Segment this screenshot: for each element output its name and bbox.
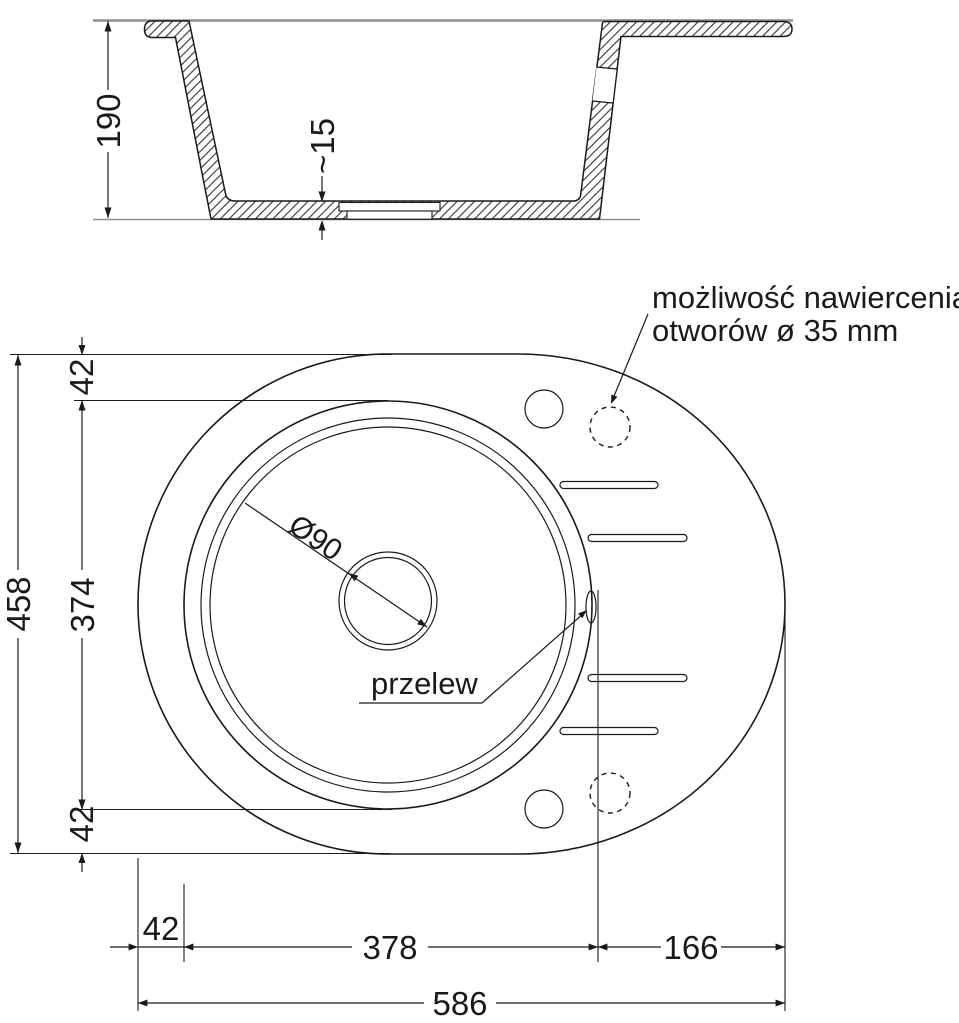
overflow-label: przelew <box>371 666 478 701</box>
rim-width-value: 42 <box>143 910 180 947</box>
drain-recess-section <box>339 203 440 220</box>
drainer-groove <box>588 675 687 682</box>
bowl-outer-rim <box>184 401 592 809</box>
total-depth-value: 458 <box>0 576 37 631</box>
bowl-inner-rim-outer <box>201 418 575 792</box>
overflow-callout: przelew <box>359 610 587 703</box>
tap-hole-bottom <box>525 790 563 828</box>
sink-outline <box>138 354 785 854</box>
technical-drawing-page: 190 ~15 <box>0 0 959 1023</box>
dimension-top-offset: 42 <box>63 337 100 395</box>
optional-hole-bottom <box>590 773 630 813</box>
sink-technical-drawing: 190 ~15 <box>0 0 959 1023</box>
annotation-line1: możliwość nawiercenia <box>652 280 959 315</box>
drainer-groove <box>560 482 658 489</box>
drainer-grooves <box>560 482 687 735</box>
sink-section-body <box>145 21 793 219</box>
dimension-bottom-thickness: ~15 <box>304 118 341 240</box>
bowl-inner-rim-inner <box>210 427 566 783</box>
section-height-value: 190 <box>90 93 127 148</box>
drainer-groove <box>588 535 687 542</box>
tap-hole-top <box>525 390 563 428</box>
drainer-groove <box>560 728 658 735</box>
dimension-bottom-offset: 42 <box>63 806 100 872</box>
optional-hole-top <box>590 407 630 447</box>
overflow-hole-section <box>593 67 617 103</box>
bowl-diameter-value: 374 <box>64 577 101 632</box>
dimension-bowl-diameter: 374 <box>64 400 101 810</box>
bowl-width-value: 378 <box>362 929 417 966</box>
dimension-section-height: 190 <box>90 21 127 218</box>
cross-section-view: 190 ~15 <box>90 21 793 241</box>
dimension-drainer-width: 166 <box>598 929 785 966</box>
bottom-offset-value: 42 <box>63 806 100 843</box>
dimension-drain-diameter: Ø90 <box>245 503 427 627</box>
drain-diameter-value: Ø90 <box>283 509 348 568</box>
top-view: Ø90 przelew możliwość nawiercenia otworó… <box>0 280 959 872</box>
bottom-dimensions: 42 378 166 586 <box>110 590 785 1022</box>
total-width-value: 586 <box>432 985 487 1022</box>
top-offset-value: 42 <box>63 359 100 396</box>
dimension-total-depth: 458 <box>0 355 37 853</box>
drill-holes-annotation: możliwość nawiercenia otworów ø 35 mm <box>611 280 959 404</box>
dimension-total-width: 586 <box>138 985 785 1022</box>
bottom-thickness-value: ~15 <box>304 118 341 174</box>
drainer-width-value: 166 <box>663 929 718 966</box>
dimension-bowl-width: 378 <box>184 929 598 966</box>
dimension-rim-width: 42 <box>110 910 184 951</box>
annotation-line2: otworów ø 35 mm <box>652 313 898 348</box>
